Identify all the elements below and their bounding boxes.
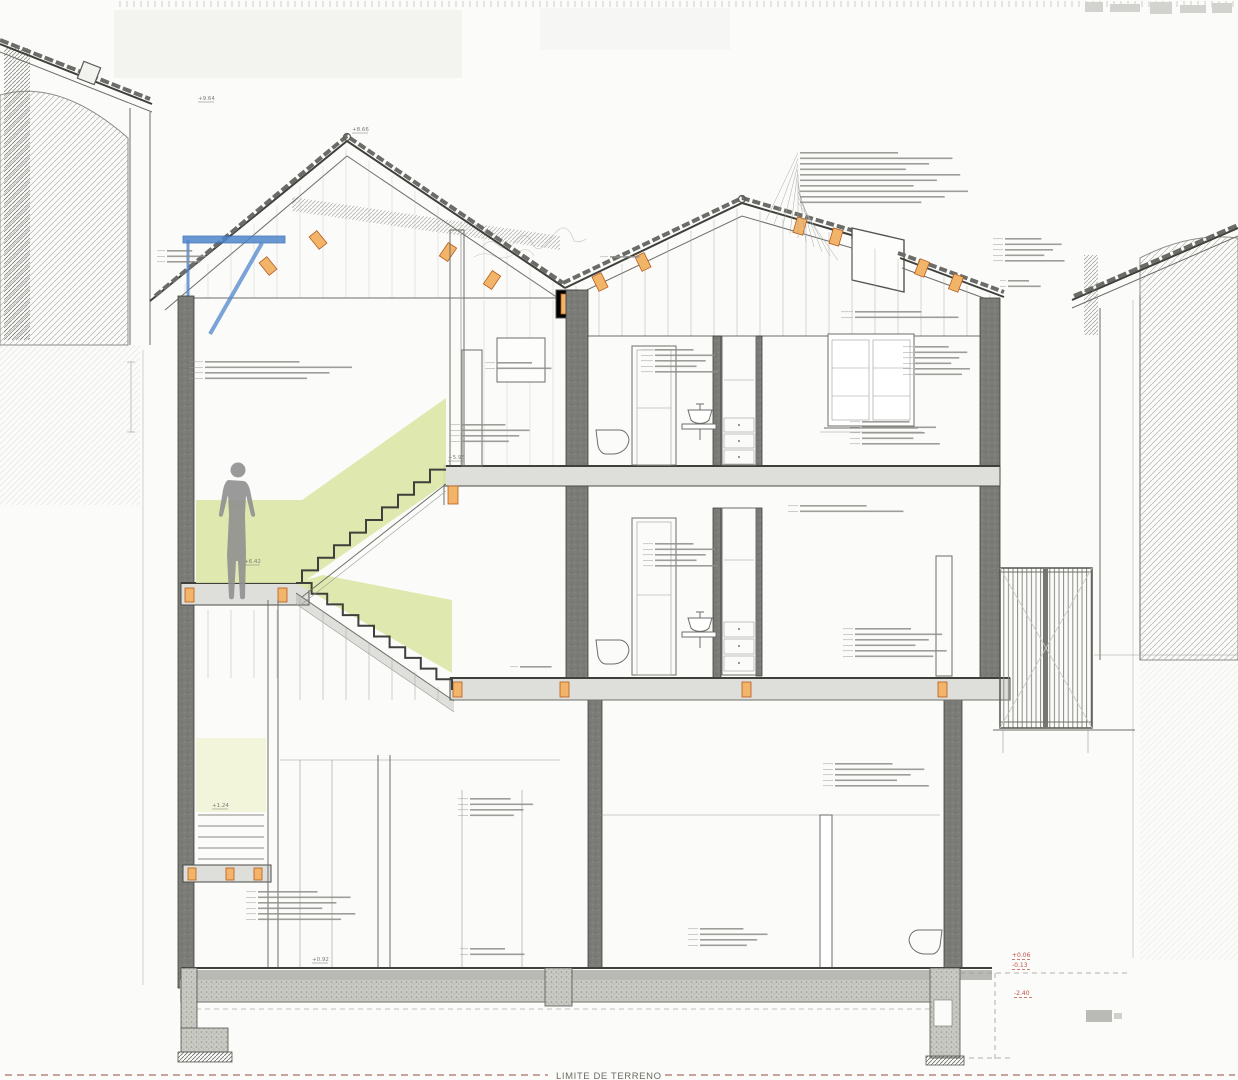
svg-text:-0.13: -0.13 xyxy=(1012,962,1028,969)
toilet xyxy=(596,430,629,454)
cabinet xyxy=(722,508,756,675)
interior-window-opening xyxy=(497,338,545,382)
gate-fence xyxy=(993,568,1135,753)
terrain-line: LIMITE DE TERRENO xyxy=(5,1071,1235,1080)
center-footing xyxy=(545,968,572,1006)
scan-smudge xyxy=(1086,1010,1112,1022)
ground-toilet xyxy=(909,930,942,954)
center-wall-upper xyxy=(566,290,588,700)
right-roof xyxy=(563,196,1004,337)
top-ruler-ticks xyxy=(116,1,1234,9)
balcony-window xyxy=(820,334,922,432)
mid-floor-slab xyxy=(450,678,1010,700)
svg-text:+0.06: +0.06 xyxy=(1012,952,1031,959)
right-neighbor-building xyxy=(1072,225,1238,960)
right-exterior-wall-upper xyxy=(980,298,1000,680)
svg-text:+6.42: +6.42 xyxy=(244,559,261,565)
mid-balcony-door xyxy=(936,556,952,676)
left-neighbor-dark-edge xyxy=(4,48,30,340)
ground-slab xyxy=(181,970,992,980)
shaft-highlight xyxy=(196,738,266,812)
sink xyxy=(682,612,716,648)
sink xyxy=(682,404,716,440)
svg-text:+5.96: +5.96 xyxy=(448,455,465,461)
svg-text:+8.66: +8.66 xyxy=(352,127,369,133)
svg-text:+9.64: +9.64 xyxy=(198,96,215,102)
cabinet xyxy=(722,336,756,465)
shaft-stair-treads xyxy=(198,815,264,859)
center-wall-ground xyxy=(588,700,602,968)
mid-bathroom xyxy=(596,508,756,675)
right-exterior-wall-ground xyxy=(944,700,962,968)
right-neighbor-wall-hatch xyxy=(1140,237,1238,660)
left-roof xyxy=(150,134,565,311)
door xyxy=(632,518,676,675)
stair-green-upper-flight xyxy=(302,398,446,583)
toilet xyxy=(596,640,629,664)
bath-wall-mid xyxy=(713,508,721,678)
terrain-label: LIMITE DE TERRENO xyxy=(556,1071,662,1080)
right-footing xyxy=(926,968,964,1065)
svg-text:+0.92: +0.92 xyxy=(312,957,329,963)
section-drawing: +9.64+8.66+6.42+5.96+1.24+0.92 +0.06-0.1… xyxy=(0,0,1238,1080)
foundation xyxy=(178,968,1130,1065)
stair-green-landing xyxy=(196,500,302,583)
shaft-mid-band xyxy=(183,865,271,882)
left-exterior-wall xyxy=(178,296,194,988)
level-markers-red: +0.06-0.13-2.40 xyxy=(1012,952,1032,998)
upper-floor-slab xyxy=(444,466,1000,505)
svg-text:+1.24: +1.24 xyxy=(212,803,229,809)
svg-text:-2.40: -2.40 xyxy=(1014,990,1030,997)
scanned-section-sheet: +9.64+8.66+6.42+5.96+1.24+0.92 +0.06-0.1… xyxy=(0,0,1238,1080)
left-neighbor-building xyxy=(0,40,152,505)
door xyxy=(632,346,676,465)
